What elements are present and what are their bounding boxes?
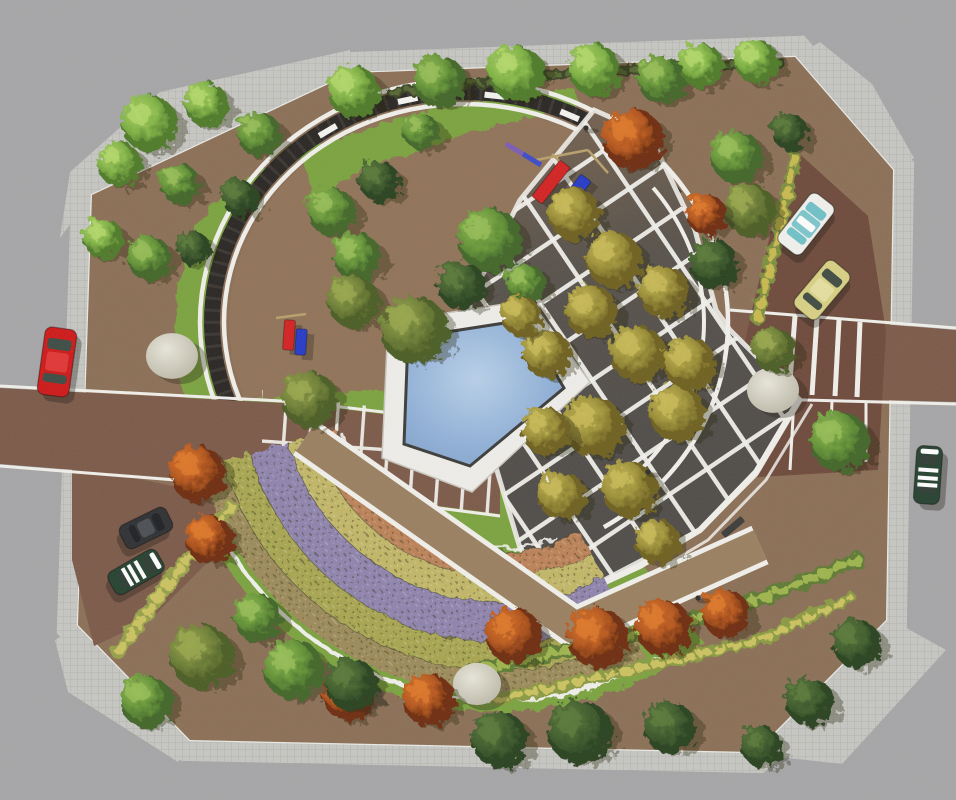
landscape-plan-rendering <box>0 0 956 800</box>
site-plan-svg <box>0 0 956 800</box>
grain-overlay <box>0 0 956 800</box>
